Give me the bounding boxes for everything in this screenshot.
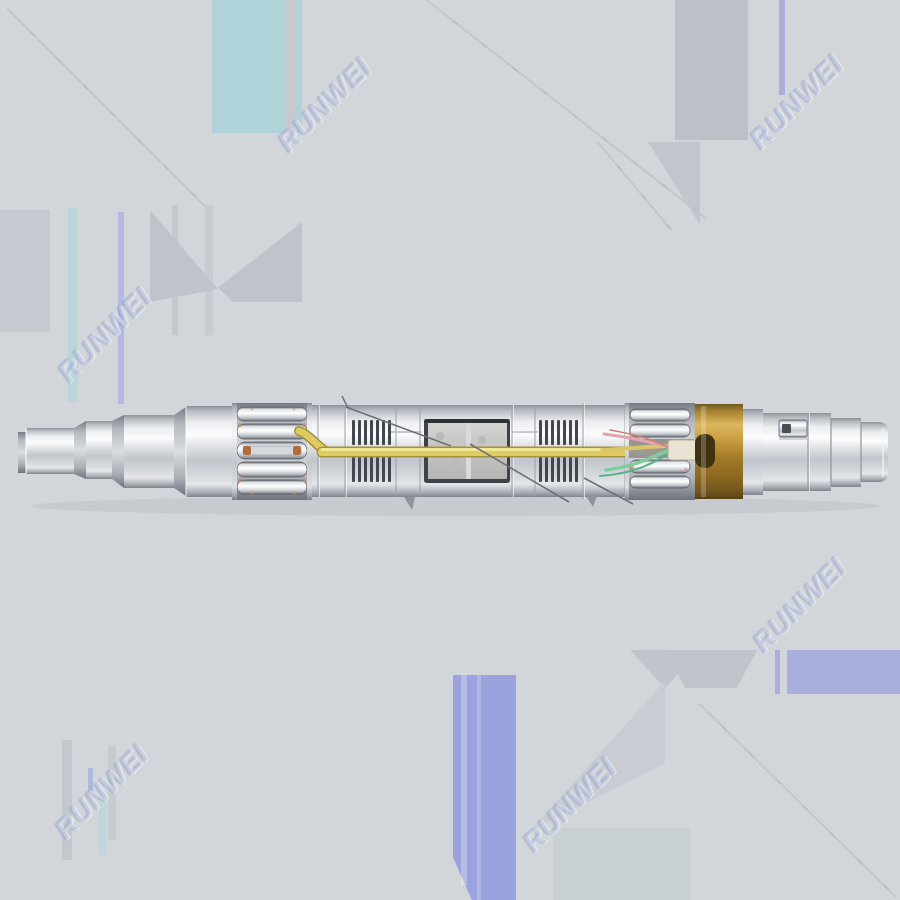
- inner-rod: [243, 446, 301, 455]
- brass-band: [695, 404, 743, 499]
- wire-connector: [668, 440, 698, 460]
- product-photo: [0, 0, 900, 900]
- product-photo-canvas: RUNWEI RUNWEI RUNWEI RUNWEI RUNWEI RUNWE…: [0, 0, 900, 900]
- tail-section: [743, 409, 888, 495]
- nose-cone: [18, 406, 232, 497]
- product-shadow: [30, 496, 880, 516]
- cage-left: [232, 403, 312, 500]
